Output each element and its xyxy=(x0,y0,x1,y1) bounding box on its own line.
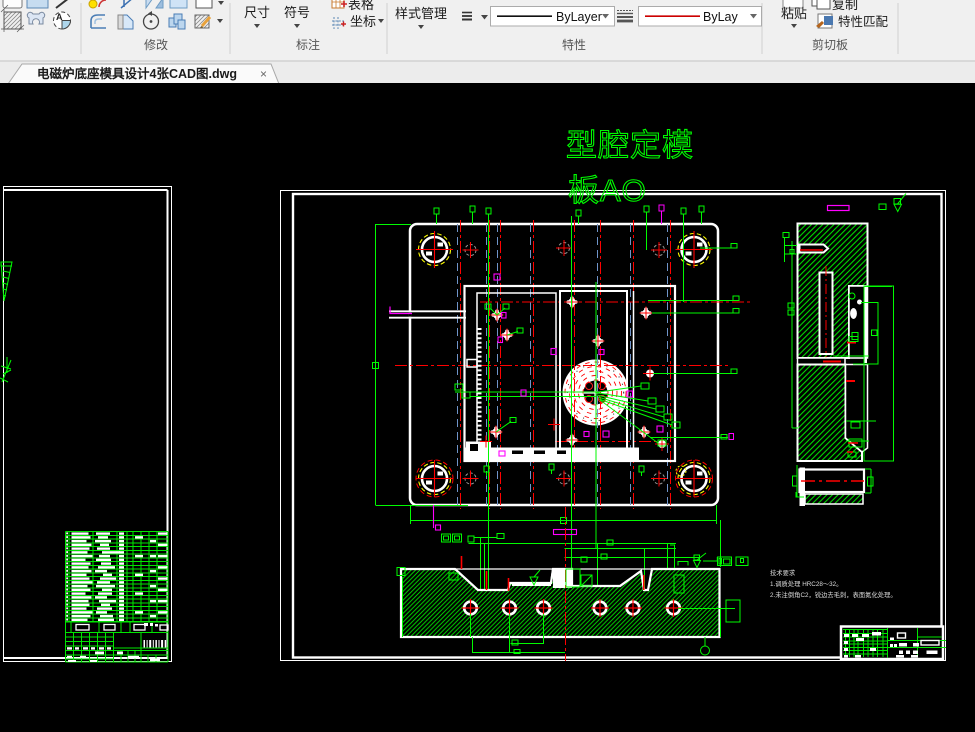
svg-text:板AO: 板AO xyxy=(568,173,647,208)
svg-text:粘贴: 粘贴 xyxy=(781,6,807,21)
svg-text:标注: 标注 xyxy=(296,37,320,52)
svg-text:×: × xyxy=(260,67,267,81)
svg-text:ByLay: ByLay xyxy=(703,10,738,24)
svg-text:特性: 特性 xyxy=(562,37,586,52)
svg-text:修改: 修改 xyxy=(144,37,168,52)
svg-text:复制: 复制 xyxy=(832,0,858,12)
svg-text:A: A xyxy=(56,12,63,22)
svg-text:2.未注倒角C2，锐边去毛刺，表面氮化处理。: 2.未注倒角C2，锐边去毛刺，表面氮化处理。 xyxy=(770,590,897,599)
svg-text:1.调质处理 HRC28～32。: 1.调质处理 HRC28～32。 xyxy=(770,579,842,588)
svg-text:尺寸: 尺寸 xyxy=(244,5,270,20)
svg-text:样式管理: 样式管理 xyxy=(395,6,447,21)
svg-text:剪切板: 剪切板 xyxy=(812,37,848,52)
svg-text:特性匹配: 特性匹配 xyxy=(838,14,889,29)
svg-text:ByLayer: ByLayer xyxy=(556,10,602,24)
svg-text:技术要求: 技术要求 xyxy=(770,568,796,577)
svg-text:符号: 符号 xyxy=(284,5,310,20)
svg-text:坐标: 坐标 xyxy=(350,14,376,29)
svg-text:型腔定模: 型腔定模 xyxy=(566,128,694,163)
svg-text:表格: 表格 xyxy=(348,0,374,12)
svg-text:电磁炉底座模具设计4张CAD图.dwg: 电磁炉底座模具设计4张CAD图.dwg xyxy=(37,66,237,81)
